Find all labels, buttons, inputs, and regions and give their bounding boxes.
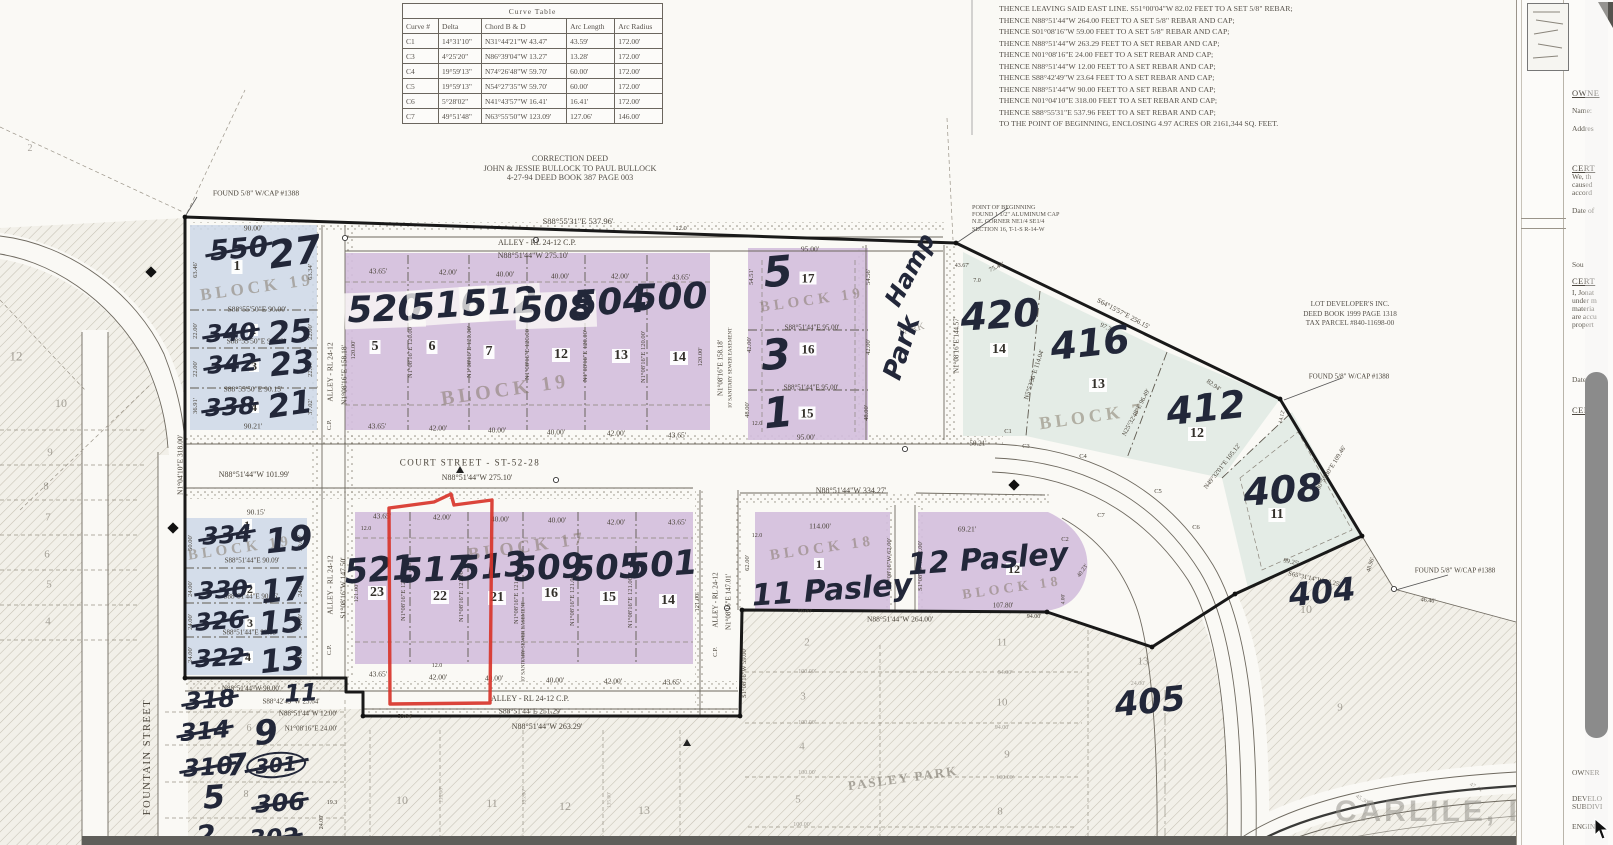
map-label: S88°51'44"E 251.29': [499, 707, 562, 715]
map-label: ALLEY - RL 24-12 C.P.: [498, 239, 576, 247]
map-label: 121.00': [695, 592, 702, 611]
map-label: 11: [486, 797, 498, 809]
map-label: 42.00': [604, 677, 622, 685]
map-label: 42.00': [439, 268, 457, 276]
curve-table-header: Curve #: [403, 19, 439, 34]
curve-table: Curve Table Curve #DeltaChord B & DArc L…: [402, 3, 663, 124]
curve-table-header: Chord B & D: [482, 19, 567, 34]
map-label: 135.00': [522, 789, 528, 805]
map-label: 54.00': [998, 670, 1013, 676]
map-label: 6: [247, 724, 252, 734]
map-label: 14: [670, 351, 688, 365]
handwritten-annotation: 416: [1049, 320, 1132, 366]
handwritten-annotation: 405: [1113, 681, 1187, 722]
map-label: N88°51'44"W 101.99': [219, 471, 290, 479]
handwritten-annotation: 3: [760, 333, 792, 377]
map-label: 16: [800, 343, 817, 356]
map-label: 42.00': [429, 673, 447, 681]
map-label: FOUND 5/8" W/CAP #1388: [1309, 374, 1389, 381]
map-label: 9: [1004, 750, 1010, 761]
handwritten-annotation: 330: [197, 577, 248, 604]
map-label: 40.00': [548, 516, 566, 524]
map-label: 4: [45, 617, 51, 628]
map-label: 120.00': [698, 347, 705, 366]
map-label: 12: [10, 350, 23, 363]
map-label: C1: [1004, 429, 1012, 436]
map-label: S88°51'44"E 95.00': [785, 325, 840, 332]
curve-table-body: C114°31'10"N31°44'21"W 43.47'43.59'172.0…: [403, 34, 663, 124]
map-label: 3: [800, 692, 806, 703]
map-label: 10' SANITARY SEWER EASEMENT: [728, 328, 733, 409]
map-label: 10: [396, 794, 408, 806]
map-label: 3: [245, 617, 255, 629]
map-label: 50.00': [188, 535, 195, 551]
correction-deed: CORRECTION DEEDJOHN & JESSIE BULLOCK TO …: [484, 154, 657, 183]
map-label: 43.65': [668, 431, 686, 439]
map-label: FOUNTAIN STREET: [143, 699, 154, 815]
map-label: N88°51'44"W 264.00': [867, 615, 933, 623]
map-label: 11: [997, 638, 1008, 649]
handwritten-annotation: 5: [202, 780, 226, 813]
map-label: 48.00': [864, 405, 871, 421]
map-label: 10: [55, 397, 67, 409]
map-label: 8: [997, 807, 1003, 818]
handwritten-annotation: 340: [205, 320, 256, 347]
map-label: N88°51'44"W 12.00': [279, 711, 337, 718]
handwritten-annotation: 15: [257, 604, 304, 640]
map-label: 12: [559, 800, 571, 812]
map-label: 5: [795, 795, 801, 806]
map-label: N1°08'16"E 120.00': [525, 328, 532, 380]
map-label: S88°51'44"E 95.00': [784, 385, 839, 392]
map-label: 12.0: [432, 663, 443, 669]
map-label: 19.3: [327, 800, 338, 806]
map-label: 62.00': [745, 555, 752, 571]
map-label: 43.65': [663, 678, 681, 686]
map-label: 13: [612, 349, 630, 363]
map-label: 43.65': [373, 512, 391, 520]
curve-table-title: Curve Table: [403, 4, 663, 19]
map-label: ALLEY - RL 24-12: [326, 555, 334, 614]
map-label: N1°08'16"E 147.01': [726, 574, 733, 630]
map-label: 90.21': [244, 422, 262, 430]
map-label: 63.46': [193, 262, 200, 278]
curve-table-row: C34°25'20"N86°39'04"W 13.27'13.28'172.00…: [403, 49, 663, 64]
panel-text: Sou: [1572, 260, 1584, 269]
map-label: 90.15': [247, 508, 265, 516]
map-label: 42.00': [866, 339, 873, 355]
curve-table-row: C114°31'10"N31°44'21"W 43.47'43.59'172.0…: [403, 34, 663, 49]
handwritten-annotation: 23: [268, 345, 316, 381]
map-label: 12.0: [752, 421, 763, 427]
map-label: 12.0: [361, 526, 372, 532]
handwritten-annotation: 11: [284, 680, 319, 706]
map-label: FOUND 5/8" W/CAP #1388: [213, 189, 299, 197]
map-label: 54.56': [866, 269, 873, 285]
handwritten-annotation: 500: [632, 279, 708, 318]
handwritten-annotation: 314: [179, 717, 231, 745]
curve-table-header: Arc Length: [567, 19, 615, 34]
map-label: 43.65': [369, 670, 387, 678]
scrollbar-thumb[interactable]: [1585, 372, 1608, 738]
handwritten-annotation: 326: [194, 607, 246, 634]
plat-document-page: Curve Table Curve #DeltaChord B & DArc L…: [0, 0, 1613, 845]
map-label: 22: [431, 590, 449, 604]
map-label: 24.00': [319, 815, 325, 830]
map-label: 6: [427, 340, 438, 354]
map-label: 4: [799, 742, 805, 753]
curve-table-row: C749°51'48"N63°55'50"W 123.09'127.06'146…: [403, 109, 663, 124]
map-label: N1°08'16"E 24.00': [285, 726, 338, 733]
map-label: C5: [1154, 489, 1162, 496]
map-label: 40.00': [547, 428, 565, 436]
map-label: 13: [1138, 657, 1149, 668]
map-label: S1°08'16"W 59.00': [742, 648, 749, 698]
map-label: 22.00': [193, 323, 200, 339]
map-label: 69.21': [958, 525, 976, 533]
map-label: ALLEY - RL 24-12 C.P.: [491, 695, 569, 703]
map-label: N88°51'44"W 263.29': [512, 723, 583, 731]
handwritten-annotation: 21: [266, 385, 315, 423]
map-label: 42.00': [747, 337, 754, 353]
map-label: N88°51'44"W 334.27': [816, 487, 887, 495]
handwritten-annotation: 13: [258, 642, 306, 678]
map-label: S88°55'50"E 90.00': [228, 305, 287, 313]
map-label: N88°51'44"W 275.10': [442, 474, 513, 482]
map-label: 5: [370, 340, 381, 354]
handwritten-annotation: 420: [959, 293, 1041, 336]
map-label: 13: [638, 804, 650, 816]
curve-table-head: Curve Table Curve #DeltaChord B & DArc L…: [403, 4, 663, 34]
handwritten-annotation: 501: [625, 546, 698, 585]
map-label: 17: [800, 272, 817, 285]
map-label: C.P.: [327, 420, 334, 430]
map-label: 9: [1337, 703, 1343, 714]
map-label: 42.00': [607, 518, 625, 526]
map-label: N1°08'16"E 120.00': [467, 326, 474, 378]
map-label: 42.00': [607, 429, 625, 437]
curve-table-row: C419°59'13"N74°26'48"W 59.70'60.00'172.0…: [403, 64, 663, 79]
map-label: 95.00': [801, 245, 819, 253]
map-label: C4: [1079, 454, 1087, 461]
map-label: S88°55'31"E 537.96': [543, 217, 614, 226]
map-label: 7: [45, 513, 51, 524]
map-label: C.P.: [713, 647, 719, 657]
curve-table-row: C65°28'02"N41°43'57"W 16.41'16.41'172.00…: [403, 94, 663, 109]
map-label: 10: [997, 698, 1008, 709]
map-label: 21: [488, 591, 506, 605]
map-label: N88°51'44"W 275.10': [498, 252, 569, 260]
map-label: C3: [1022, 444, 1030, 451]
curve-table-header: Delta: [439, 19, 482, 34]
map-label: 107.80': [993, 603, 1014, 610]
handwritten-annotation: 550: [209, 233, 270, 266]
map-label: 40.00': [546, 676, 564, 684]
map-label: C7: [1097, 513, 1105, 520]
map-label: ALLEY - RL 24-12: [326, 342, 334, 401]
map-label: 24.00': [188, 581, 195, 597]
map-label: N1°08'16"E 120.00': [641, 331, 648, 383]
map-label: 7: [484, 345, 495, 359]
map-label: 42.00': [611, 272, 629, 280]
curve-table-header: Arc Radius: [615, 19, 663, 34]
scrollbar[interactable]: [1585, 0, 1608, 845]
map-label: 40.00': [488, 426, 506, 434]
map-label: 8: [244, 790, 249, 800]
map-label: N1°08'16"E 144.57': [954, 317, 961, 373]
map-label: 43.65': [369, 267, 387, 275]
point-of-beginning-note: POINT OF BEGINNINGFOUND 1 1/2" ALUMINUM …: [972, 204, 1059, 233]
map-label: N1°04'10"E 318.00': [176, 435, 184, 495]
map-label: 4.00': [1061, 594, 1067, 605]
handwritten-annotation: 334: [201, 521, 253, 548]
map-label: 12: [552, 348, 570, 362]
map-label: N1°08'16"E 120.00': [408, 326, 415, 378]
handwritten-annotation: 342: [206, 350, 258, 377]
map-label: 14: [659, 594, 677, 608]
curve-table-row: C519°59'13"N54°27'35"W 59.70'60.00'172.0…: [403, 79, 663, 94]
map-label: 2: [28, 144, 33, 154]
map-label: 8: [43, 482, 49, 493]
map-label: 13: [1089, 378, 1107, 392]
map-label: 42.00': [433, 513, 451, 521]
map-label: C.P.: [327, 645, 334, 655]
map-label: N1°08'16"E 158.18': [340, 345, 348, 405]
map-label: 135.00': [607, 792, 613, 808]
map-label: 12.0: [752, 533, 763, 539]
map-label: 43.67': [955, 263, 970, 269]
map-label: 135.00': [439, 787, 445, 803]
map-label: COURT STREET - ST-52-28: [400, 459, 541, 468]
map-label: 16: [542, 587, 560, 601]
map-label: 54.51': [749, 269, 756, 285]
map-label: 36.91': [193, 398, 200, 414]
map-label: 100.00': [996, 775, 1014, 781]
handwritten-annotation: 412: [1165, 385, 1248, 431]
handwritten-annotation: 322: [194, 645, 245, 672]
page-bottom-shadow: [82, 836, 1534, 845]
map-label: 1: [814, 558, 824, 570]
map-label: 100.00': [798, 720, 816, 726]
map-label: 2: [804, 638, 810, 649]
map-label: 42.00': [429, 424, 447, 432]
map-label: 5: [46, 580, 52, 591]
map-label: 7.0: [973, 278, 981, 284]
handwritten-annotation: 306: [254, 789, 306, 816]
map-label: 10' SANITARY SEWER EASEMENT: [521, 602, 526, 683]
handwritten-annotation: 318: [184, 686, 236, 713]
map-label: N1°08'16"E 158.18': [718, 340, 725, 396]
handwritten-annotation: 19: [264, 521, 315, 560]
map-label: ALLEY - RL 24-12: [713, 572, 720, 627]
map-label: 43.65': [668, 518, 686, 526]
handwritten-annotation: 408: [1242, 468, 1324, 511]
map-label: 50.21': [969, 441, 986, 448]
handwritten-annotation: 27: [266, 230, 324, 275]
map-label: 94.00': [995, 725, 1010, 731]
curve-table-headers: Curve #DeltaChord B & DArc LengthArc Rad…: [403, 19, 663, 34]
handwritten-annotation: 338: [204, 394, 255, 421]
map-label: 15: [600, 591, 618, 605]
mouse-cursor: [1594, 818, 1613, 842]
map-label: 100.00': [798, 669, 816, 675]
map-label: 48.00': [745, 402, 752, 418]
map-label: 12.0: [675, 226, 686, 233]
map-label: 120.00': [351, 340, 358, 359]
map-label: 40.00': [491, 515, 509, 523]
map-label: 40.00': [485, 674, 503, 682]
map-label: 14: [990, 343, 1008, 357]
map-label: 6: [44, 550, 50, 561]
map-label: 94.00': [1027, 614, 1042, 620]
map-label: FOUND 5/8" W/CAP #1388: [1415, 568, 1495, 575]
map-label: 114.00': [809, 522, 831, 530]
map-label: 9: [47, 448, 53, 459]
handwritten-annotation: 1: [761, 391, 794, 436]
map-label: C6: [1192, 525, 1200, 532]
handwritten-annotation: 5: [762, 250, 795, 294]
developer-note: LOT DEVELOPER'S INC.DEED BOOK 1999 PAGE …: [1303, 300, 1397, 329]
map-label: 40.00': [496, 270, 514, 278]
metes-and-bounds: THENCE LEAVING SAID EAST LINE. S51°00'04…: [999, 3, 1293, 130]
handwritten-annotation: 404: [1287, 573, 1357, 612]
map-label: 43.65': [368, 422, 386, 430]
map-label: 15: [799, 407, 816, 420]
map-label: 22.00': [193, 361, 200, 377]
map-label: 40.00': [551, 272, 569, 280]
map-label: 100.00': [793, 822, 811, 828]
map-label: N1°08'16"E 120.00': [583, 330, 590, 382]
handwritten-annotation: 9: [253, 715, 280, 751]
map-label: 95.00': [797, 433, 815, 441]
map-label: 53.64': [398, 714, 413, 720]
map-label: 100.00': [798, 770, 816, 776]
plat-drawing: [0, 0, 1613, 845]
